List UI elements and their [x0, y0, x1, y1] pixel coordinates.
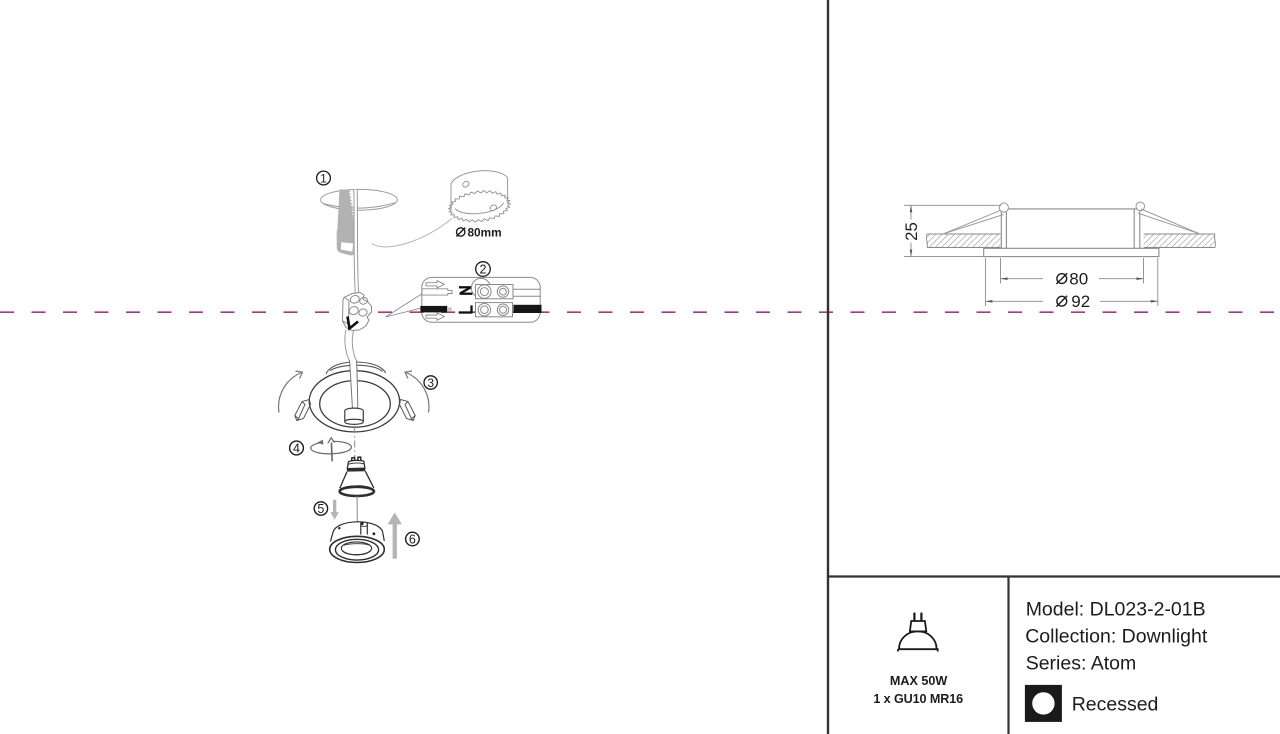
svg-text:Recessed: Recessed — [1072, 693, 1159, 715]
svg-text:Collection: Downlight: Collection: Downlight — [1025, 626, 1208, 648]
svg-text:Model: DL023-2-01B: Model: DL023-2-01B — [1026, 599, 1206, 621]
svg-text:1: 1 — [320, 171, 327, 185]
svg-text:3: 3 — [427, 376, 434, 390]
svg-text:25: 25 — [902, 222, 921, 241]
svg-text:92: 92 — [1071, 292, 1090, 311]
svg-text:4: 4 — [293, 441, 300, 455]
svg-text:80: 80 — [1069, 270, 1088, 289]
svg-text:80mm: 80mm — [468, 225, 502, 239]
svg-text:2: 2 — [480, 263, 487, 277]
svg-text:6: 6 — [409, 532, 416, 546]
svg-text:5: 5 — [317, 502, 324, 516]
svg-text:Series: Atom: Series: Atom — [1026, 652, 1137, 674]
svg-text:MAX 50W: MAX 50W — [890, 674, 947, 688]
svg-text:1 x GU10 MR16: 1 x GU10 MR16 — [873, 692, 963, 706]
